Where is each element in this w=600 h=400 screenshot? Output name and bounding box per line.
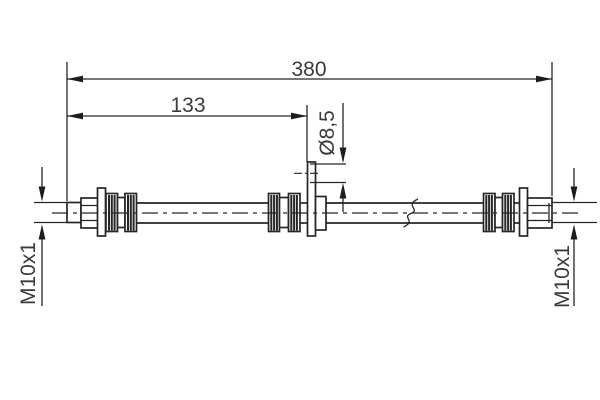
arrowhead-up-icon	[340, 183, 347, 199]
arrowhead-up-icon	[571, 225, 578, 240]
arrowhead-up-icon	[39, 225, 46, 240]
arrowhead-down-icon	[39, 187, 46, 202]
arrowhead-left-icon	[67, 76, 83, 83]
thread-label-right: M10x1	[551, 245, 574, 308]
arrowhead-right-icon	[291, 113, 307, 120]
right-thread-callout: M10x1	[551, 168, 597, 308]
dimension-label-133: 133	[170, 94, 205, 117]
arrowhead-left-icon	[67, 113, 83, 120]
technical-drawing-canvas: 380 133 Ø8,5 M10x1 M10x1	[0, 0, 600, 400]
arrowhead-right-icon	[536, 76, 552, 83]
thread-label-left: M10x1	[17, 242, 40, 305]
right-washer-plate	[520, 188, 528, 236]
left-washer-plate	[98, 188, 106, 236]
dimension-label-diameter: Ø8,5	[316, 110, 339, 156]
arrowhead-down-icon	[571, 187, 578, 202]
right-end-fitting	[484, 188, 553, 236]
dimension-bracket-offset: 133	[67, 94, 307, 162]
dimension-label-380: 380	[291, 58, 326, 81]
brake-hose-diagram: 380 133 Ø8,5 M10x1 M10x1	[0, 0, 600, 400]
left-thread-callout: M10x1	[17, 167, 67, 306]
arrowhead-down-icon	[340, 148, 347, 164]
left-end-fitting	[67, 188, 137, 236]
dimension-bracket-hole: Ø8,5	[294, 103, 346, 212]
